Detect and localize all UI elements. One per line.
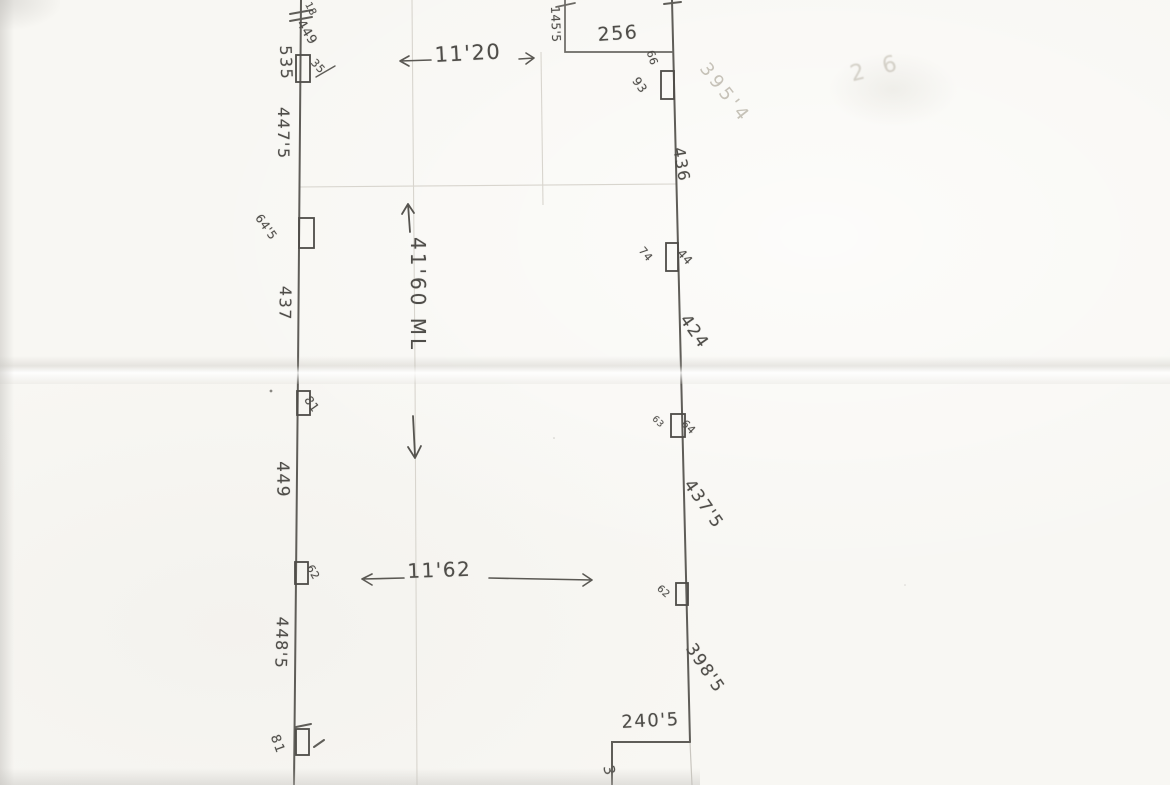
bottom-step-width-label: 240'5 (621, 711, 680, 733)
bottom-step-line (612, 742, 690, 785)
window-symbol (661, 71, 674, 99)
dim-lower-width-label: 11'62 (407, 559, 472, 582)
left-segment4-label: 448'5 (271, 616, 290, 669)
pencil-specks (270, 390, 906, 586)
dim-arrow-lower-width (362, 574, 592, 586)
small-tick (314, 740, 324, 747)
dim-vertical-label: 41'60 ML (407, 237, 428, 352)
pencil-linework (0, 0, 1170, 785)
top-step-width-label: 256 (597, 23, 639, 46)
guide-lines (299, 0, 677, 785)
top-step-side-label: 145'5 (548, 6, 562, 43)
window-symbol (299, 218, 314, 248)
left-segment2-label: 437 (276, 286, 293, 321)
left-window1-label: 535 (276, 45, 294, 81)
window-symbol (296, 729, 309, 755)
left-segment3-label: 449 (272, 461, 290, 498)
dim-top-width-label: 11'20 (434, 41, 502, 67)
right-wall-line (664, 0, 690, 742)
right-wall-faint-continuation (690, 742, 692, 785)
left-segment1-label: 447'5 (274, 107, 291, 160)
small-tick (296, 724, 311, 727)
small-tick (664, 2, 681, 4)
window-symbol (296, 55, 310, 82)
scanned-sketch-page: 18 449 535 35 447'5 64'5 437 81 449 62 4… (0, 0, 1170, 785)
